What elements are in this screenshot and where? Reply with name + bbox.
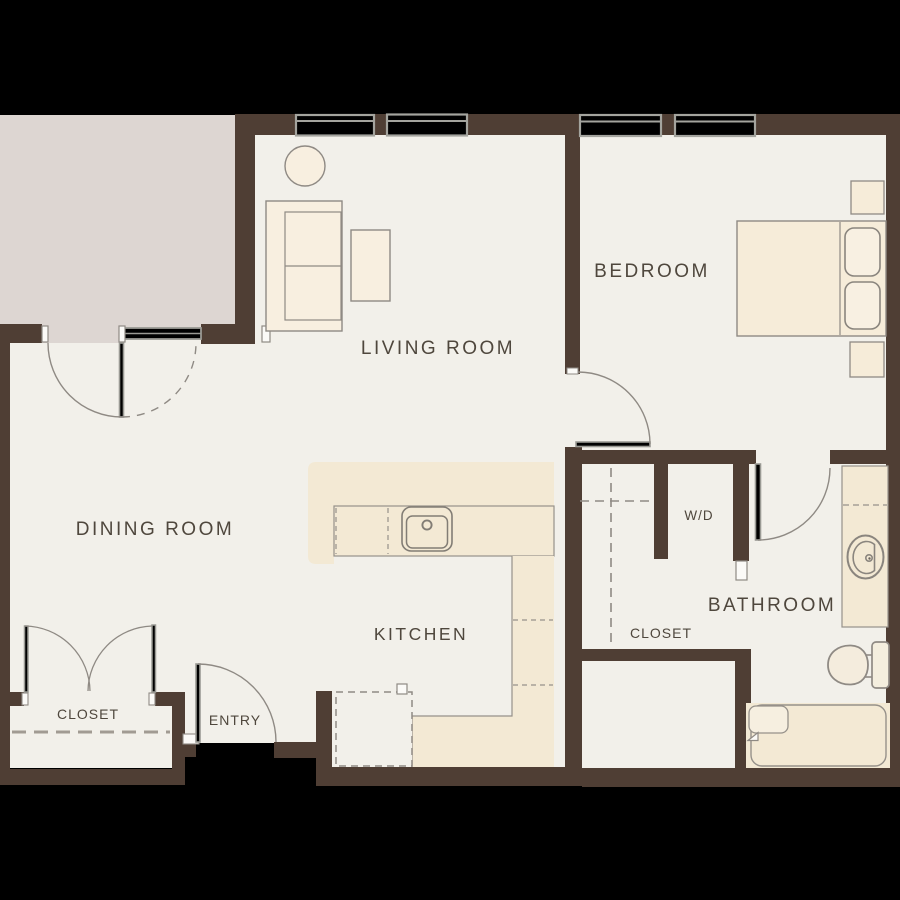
svg-text:KITCHEN: KITCHEN bbox=[374, 624, 468, 644]
svg-text:BATHROOM: BATHROOM bbox=[708, 595, 836, 616]
svg-text:DINING ROOM: DINING ROOM bbox=[76, 519, 234, 540]
svg-text:W/D: W/D bbox=[684, 508, 713, 523]
svg-text:ENTRY: ENTRY bbox=[209, 712, 261, 728]
svg-text:CLOSET: CLOSET bbox=[57, 706, 119, 722]
svg-text:LIVING ROOM: LIVING ROOM bbox=[361, 338, 515, 359]
svg-text:BEDROOM: BEDROOM bbox=[594, 261, 710, 282]
svg-text:CLOSET: CLOSET bbox=[630, 625, 692, 641]
